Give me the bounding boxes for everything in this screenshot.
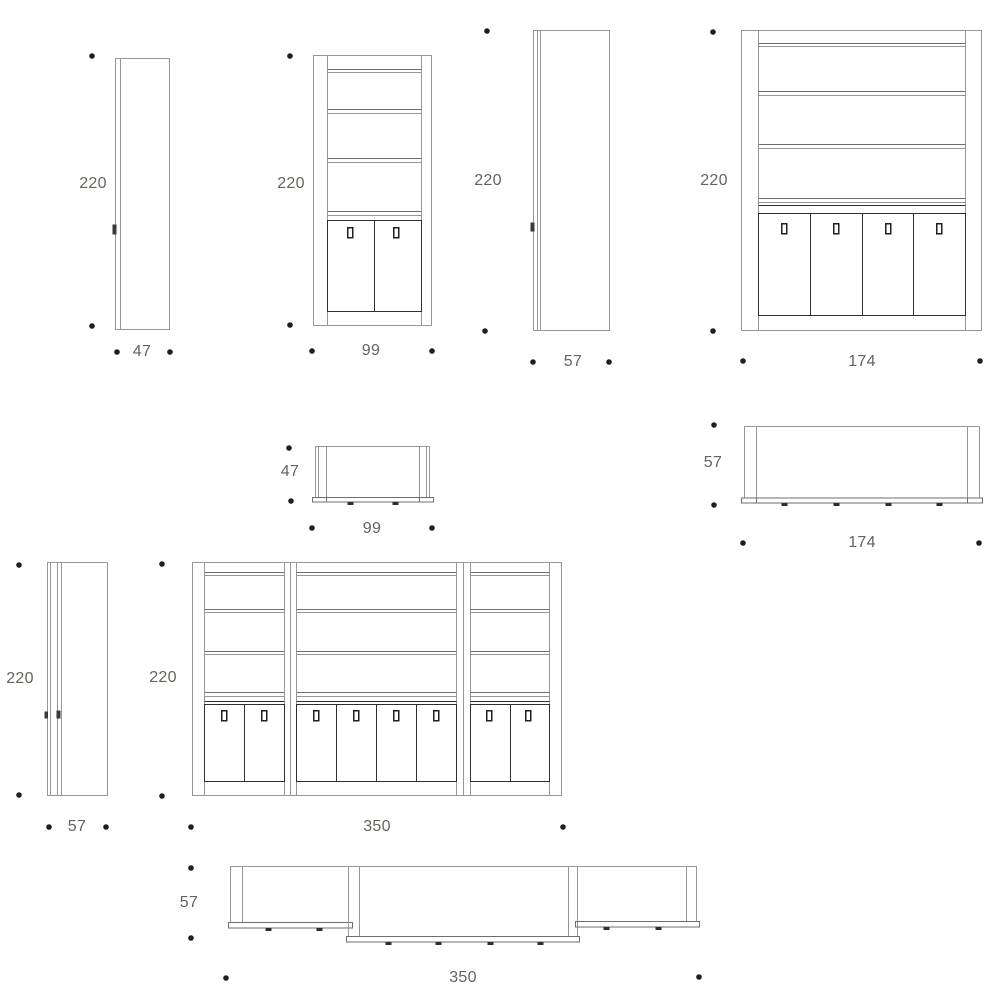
side-57-lower-height-label: 220 — [6, 671, 34, 687]
front-99-width-label: 99 — [362, 343, 380, 359]
front-view-350-drawing — [193, 563, 562, 796]
top-view-174-drawing — [742, 427, 983, 507]
door-handles — [782, 224, 942, 234]
top-350-depth-label: 57 — [180, 895, 198, 911]
side-view-57-lower-drawing — [45, 563, 108, 796]
front-view-99-drawing — [314, 56, 432, 326]
line-drawings — [0, 0, 1000, 1000]
top-99-width-label: 99 — [363, 521, 381, 537]
side-47-height-label: 220 — [79, 176, 107, 192]
top-view-99-drawing — [313, 447, 434, 506]
front-174-width-label: 174 — [848, 354, 876, 370]
side-view-47-drawing — [113, 59, 170, 330]
side-47-width-label: 47 — [133, 344, 151, 360]
top-view-350-drawing — [229, 867, 700, 946]
front-view-174-drawing — [742, 31, 982, 331]
door-handle-icon — [57, 711, 61, 719]
front-99-height-label: 220 — [277, 176, 305, 192]
door-handles — [348, 228, 399, 238]
side-view-57-upper-drawing — [531, 31, 610, 331]
top-174-width-label: 174 — [848, 535, 876, 551]
top-350-width-label: 350 — [449, 970, 477, 986]
front-350-height-label: 220 — [149, 670, 177, 686]
dimension-drawing-sheet: 220 47 220 99 220 57 220 174 47 99 57 17… — [0, 0, 1000, 1000]
side-57-lower-width-label: 57 — [68, 819, 86, 835]
top-174-depth-label: 57 — [704, 455, 722, 471]
top-99-depth-label: 47 — [281, 464, 299, 480]
side-57-upper-width-label: 57 — [564, 354, 582, 370]
side-57-upper-height-label: 220 — [474, 173, 502, 189]
front-174-height-label: 220 — [700, 173, 728, 189]
door-handle-icon — [113, 225, 117, 235]
front-350-width-label: 350 — [363, 819, 391, 835]
door-handle-icon — [531, 223, 535, 232]
door-handle-icon — [45, 712, 49, 719]
